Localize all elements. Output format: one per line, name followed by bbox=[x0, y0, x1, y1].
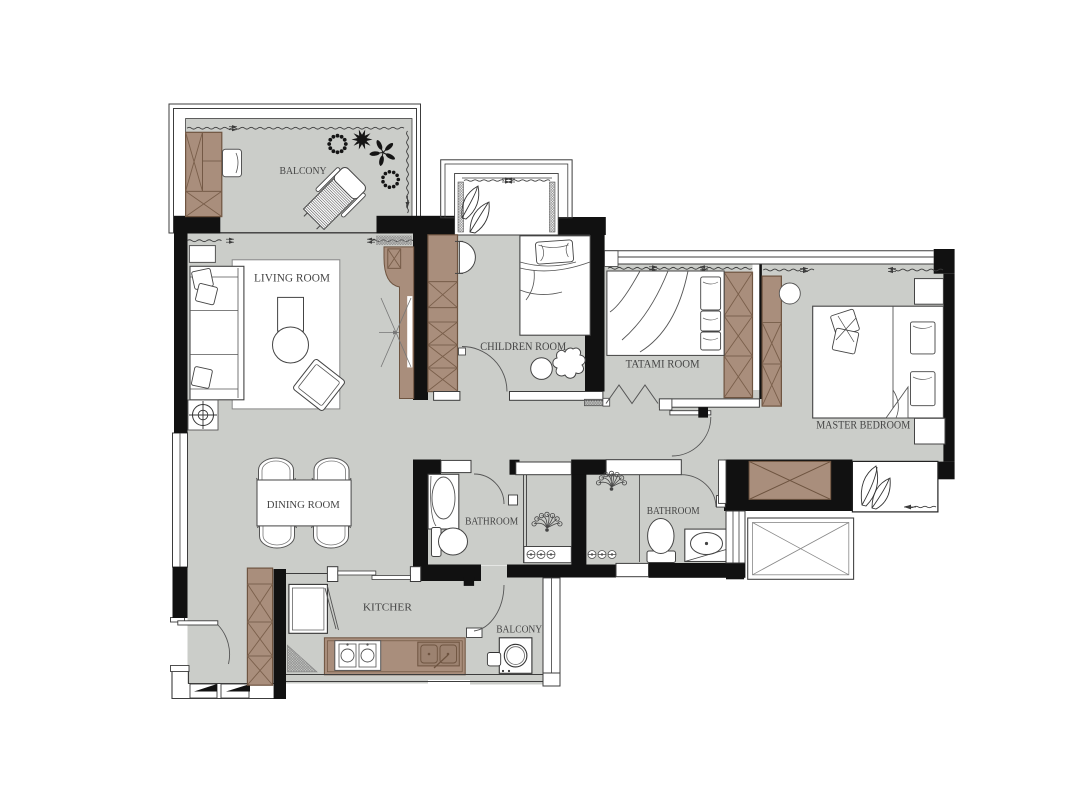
svg-text:TATAMI ROOM: TATAMI ROOM bbox=[626, 359, 700, 371]
svg-text:BATHROOM: BATHROOM bbox=[647, 506, 700, 517]
svg-text:BALCONY: BALCONY bbox=[280, 165, 327, 177]
svg-text:MASTER BEDROOM: MASTER BEDROOM bbox=[816, 420, 910, 432]
svg-text:KITCHER: KITCHER bbox=[363, 602, 413, 614]
svg-text:DINING ROOM: DINING ROOM bbox=[267, 499, 340, 511]
svg-text:BATHROOM: BATHROOM bbox=[465, 517, 518, 528]
svg-text:CHILDREN ROOM: CHILDREN ROOM bbox=[480, 341, 566, 353]
svg-text:BALCONY: BALCONY bbox=[496, 625, 542, 636]
svg-text:LIVING ROOM: LIVING ROOM bbox=[254, 271, 330, 285]
